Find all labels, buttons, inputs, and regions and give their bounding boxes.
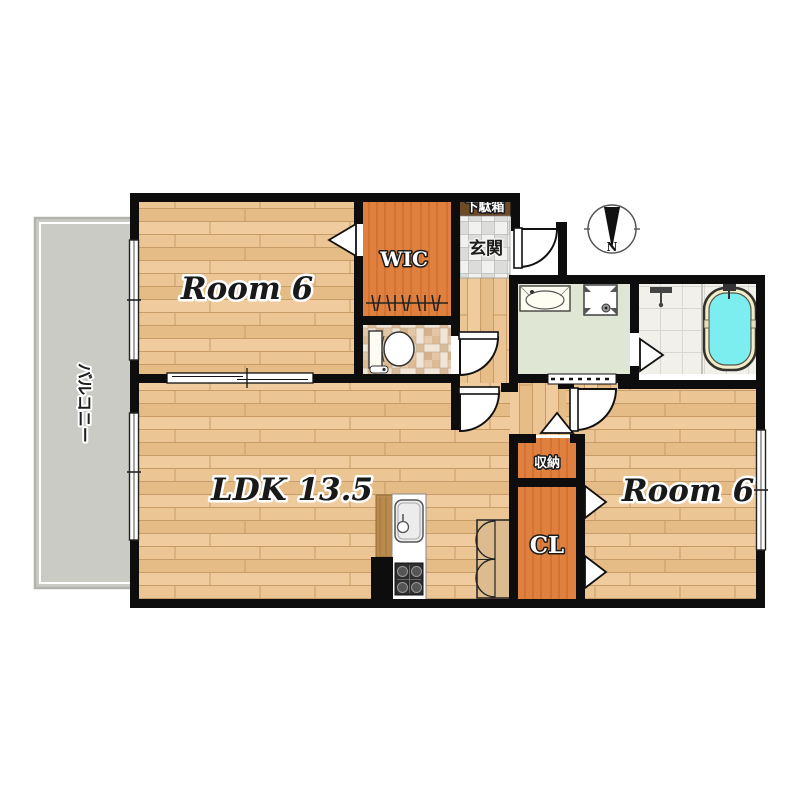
wall-room-wic-upper	[354, 193, 363, 224]
wall-wic-entrance	[451, 193, 460, 336]
storage-closet: 収納	[518, 438, 576, 478]
wall-room-right-top	[618, 380, 765, 389]
kitchen-sink-icon	[395, 500, 423, 542]
compass: N	[584, 205, 640, 254]
floor-plan-page: バルコニー Room 6 LDK 13.5 Room 6 WIC 下駄箱 玄関	[0, 0, 800, 800]
balcony: バルコニー	[35, 218, 136, 588]
wall-wash-bath-upper	[630, 283, 639, 333]
wall-washroom-left	[509, 275, 518, 383]
washroom	[518, 284, 630, 375]
folding-door-cabinet	[476, 520, 510, 598]
room-right-label: Room 6	[621, 473, 754, 509]
wic-label: WIC	[379, 247, 428, 271]
stove-icon	[395, 563, 423, 595]
cl-closet: CL	[518, 487, 576, 599]
vanity-sink-icon	[520, 286, 570, 311]
cl-label: CL	[530, 532, 564, 559]
wall-toilet-bottom	[313, 374, 460, 383]
wall-kitchen-stub	[371, 557, 393, 600]
wall-entrance-right	[558, 222, 567, 284]
wall-closet-right	[576, 434, 585, 608]
wall-hall-bottom-stub	[501, 383, 518, 392]
balcony-label: バルコニー	[75, 363, 94, 443]
wall-top-washbath	[511, 275, 765, 284]
wall-washroom-bottom-left	[509, 374, 548, 383]
wall-closet-left	[509, 434, 518, 608]
compass-north-label: N	[607, 240, 618, 254]
wall-right-upper	[756, 275, 765, 430]
room-top-left: Room 6	[139, 202, 354, 374]
entrance-door-arc	[514, 228, 557, 268]
ldk-label: LDK 13.5	[210, 472, 373, 508]
storage-label: 収納	[534, 455, 560, 471]
kitchen-side-panel	[376, 495, 393, 557]
bathtub-icon	[704, 283, 756, 370]
window-ldk	[127, 413, 141, 540]
window-room-top-left	[127, 240, 141, 360]
wall-room-ldk-stub	[130, 374, 167, 383]
wall-storage-cl-divider	[509, 478, 578, 487]
room-top-left-label: Room 6	[180, 271, 313, 307]
floor-plan-drawing: バルコニー Room 6 LDK 13.5 Room 6 WIC 下駄箱 玄関	[0, 0, 800, 800]
wall-wic-bottom	[354, 316, 460, 325]
washroom-sliding-door	[548, 374, 616, 384]
window-room-right	[754, 430, 768, 550]
wall-wash-bath-lower	[630, 366, 639, 383]
entrance: 玄関	[460, 216, 510, 278]
wall-bottom	[130, 599, 765, 608]
wic-closet: WIC	[363, 202, 451, 316]
washer-pan-icon	[584, 285, 617, 315]
entrance-label: 玄関	[469, 238, 503, 259]
toilet-room	[363, 325, 451, 374]
